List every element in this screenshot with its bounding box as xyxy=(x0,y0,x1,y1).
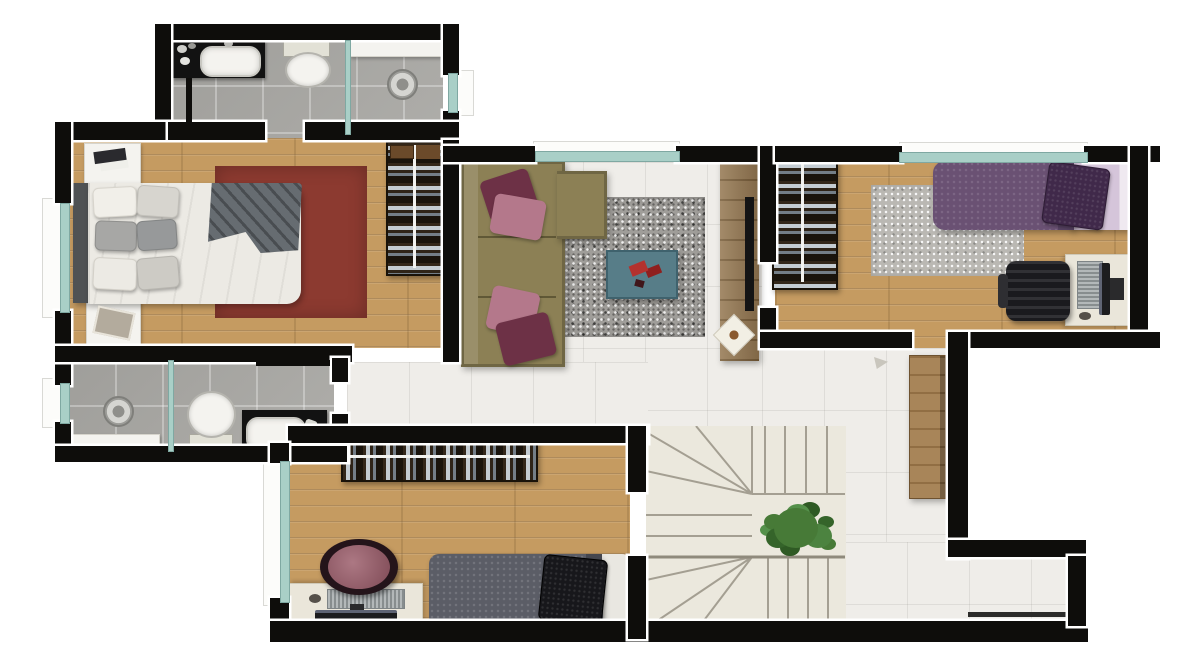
window-sill xyxy=(456,70,474,116)
floor-drain xyxy=(387,69,418,100)
wall xyxy=(948,332,968,558)
wall xyxy=(155,24,171,134)
window-glass xyxy=(60,383,70,424)
black-pillow xyxy=(538,554,609,626)
monitor-stand xyxy=(1110,278,1124,300)
desk-chair-seat xyxy=(328,545,390,589)
wall xyxy=(270,621,1088,642)
wall xyxy=(628,556,646,639)
wall xyxy=(628,426,646,492)
entry-door-leaf xyxy=(909,355,946,499)
window-glass xyxy=(535,151,680,162)
pillow xyxy=(136,219,178,252)
master-wardrobe xyxy=(386,141,448,276)
office-chair xyxy=(1006,261,1070,321)
purple-pillow xyxy=(1041,161,1111,231)
corridor-step-line xyxy=(968,612,1068,617)
plant xyxy=(774,508,818,548)
bed-headboard xyxy=(73,183,88,303)
wall xyxy=(305,122,459,140)
hallway-floor xyxy=(347,362,648,428)
wall xyxy=(775,146,902,162)
mouse xyxy=(309,594,321,603)
wall xyxy=(948,332,1160,348)
wall xyxy=(443,146,535,162)
wall xyxy=(155,24,459,40)
wardrobe-boxes xyxy=(390,145,414,159)
window-sill xyxy=(42,378,62,428)
floor-drain xyxy=(103,396,134,427)
wall xyxy=(332,358,348,382)
monitor xyxy=(1099,263,1110,315)
monitor xyxy=(315,610,397,620)
window-sill xyxy=(42,198,62,318)
wardrobe-rail xyxy=(801,163,804,282)
wall xyxy=(55,446,347,462)
pillow xyxy=(92,186,138,218)
toilet-bowl xyxy=(285,52,331,88)
floor-plan xyxy=(0,0,1200,672)
coffee-table xyxy=(606,250,678,299)
office-chair-arm xyxy=(998,274,1008,308)
window-glass xyxy=(899,152,1088,163)
wall xyxy=(443,140,459,362)
shower-glass-partition xyxy=(168,360,174,452)
wall xyxy=(1084,146,1160,162)
wall xyxy=(270,443,289,463)
mouse xyxy=(1079,312,1091,320)
shelf-line xyxy=(256,360,330,366)
wall xyxy=(760,146,776,262)
wall xyxy=(288,426,648,443)
wardrobe-rail xyxy=(413,145,416,268)
wardrobe-rail xyxy=(345,455,530,458)
toiletry-bottles xyxy=(177,45,187,53)
tv-screen xyxy=(745,197,754,311)
right-wardrobe xyxy=(772,159,838,290)
wall xyxy=(55,122,71,203)
faucet xyxy=(224,40,233,47)
pillow xyxy=(136,185,180,219)
wall xyxy=(168,122,265,140)
window-glass xyxy=(60,203,70,313)
wall xyxy=(760,332,912,348)
shower-glass-partition xyxy=(345,40,351,135)
window-glass xyxy=(448,73,458,113)
sink-basin xyxy=(200,46,261,77)
toilet-bowl xyxy=(187,391,236,438)
window-glass xyxy=(280,461,290,603)
wall xyxy=(1068,556,1086,626)
wall xyxy=(948,540,1086,557)
wall xyxy=(1130,146,1148,348)
shower-shelf xyxy=(350,40,444,57)
pillow xyxy=(136,255,181,291)
partition-stub xyxy=(186,78,192,134)
wall xyxy=(55,122,169,140)
pillow xyxy=(92,257,138,291)
pillow xyxy=(94,220,137,251)
sofa-chaise xyxy=(557,171,607,239)
wall xyxy=(443,24,459,75)
